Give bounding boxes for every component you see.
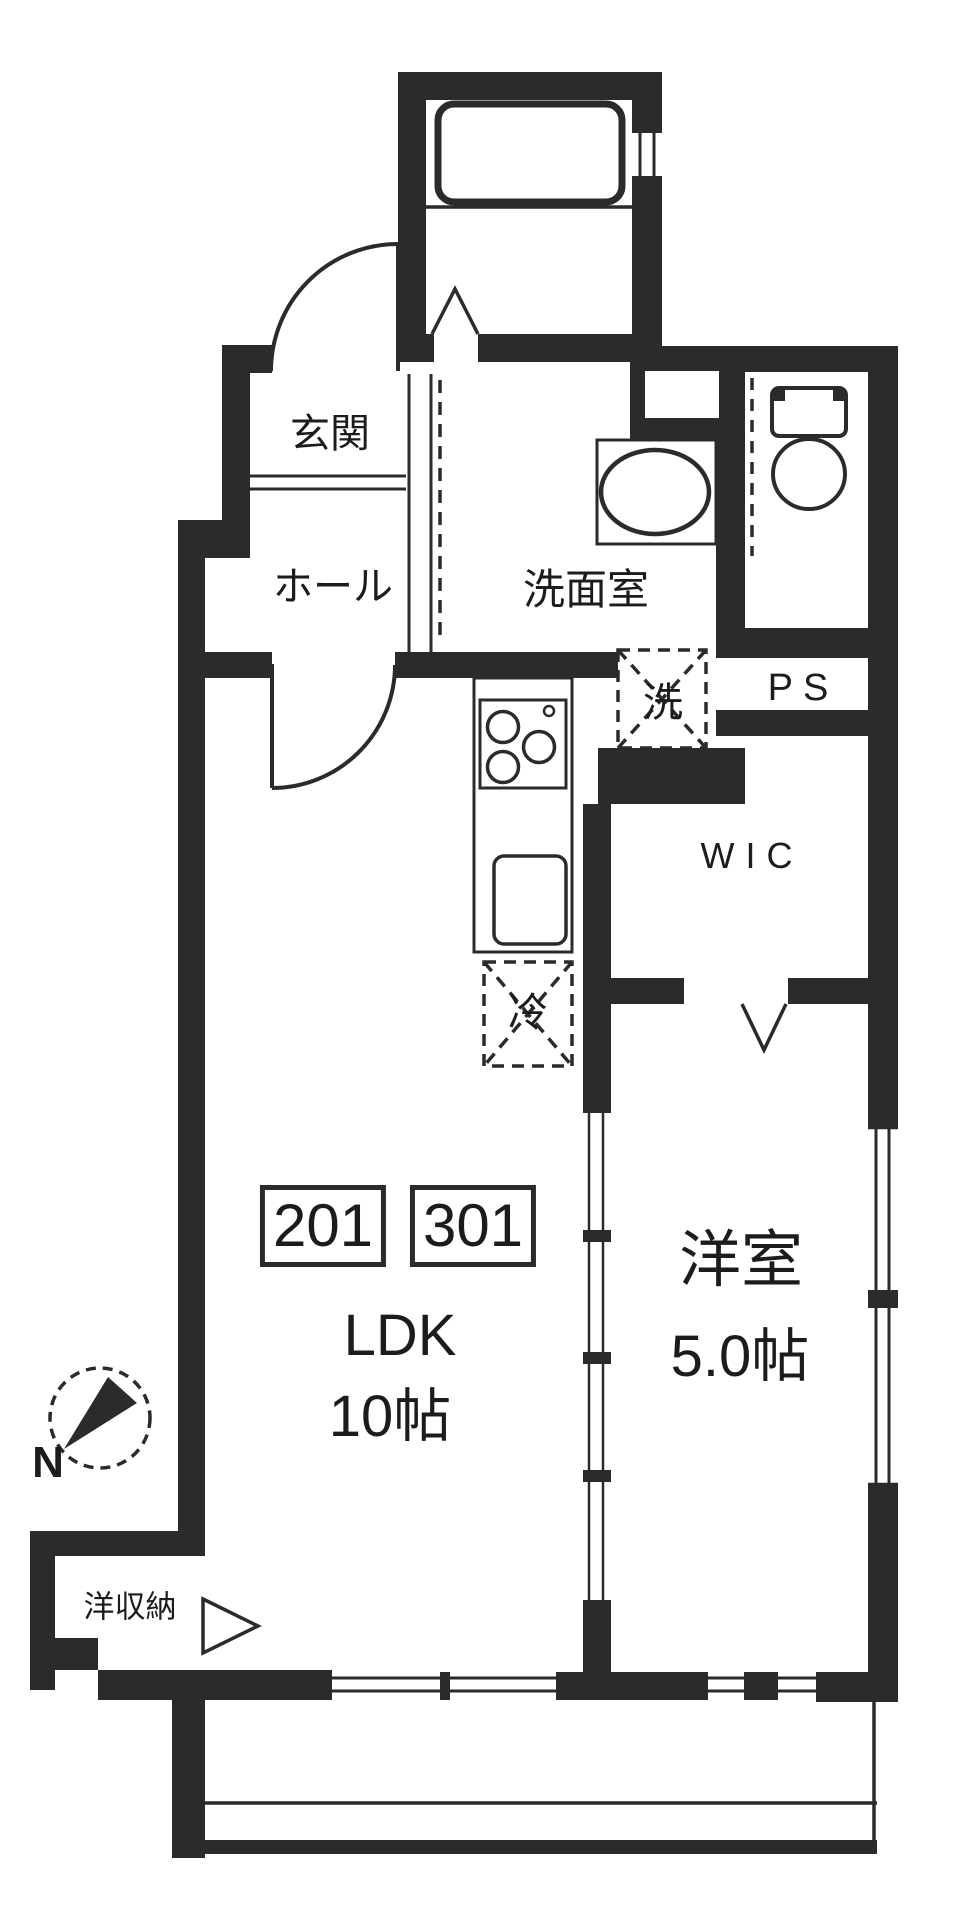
label-wic: WIC [701,838,804,874]
bathtub-icon [426,104,632,207]
sliding-partition-icon [583,1113,611,1600]
label-ldk-size: 10帖 [329,1388,452,1446]
label-storage: 洋収納 [84,1592,177,1623]
entrance-step-line [250,476,406,489]
kitchen-stove-icon [480,700,566,788]
washbasin-icon [597,440,716,544]
washroom-counter-niche [645,371,719,418]
balcony-outline [205,1702,877,1854]
label-entrance: 玄関 [290,414,370,454]
ldk-door-icon [272,664,395,788]
kitchen-sink-icon [494,856,566,944]
bath-window-icon [640,133,654,176]
label-bedroom: 洋室 [679,1230,803,1292]
label-north: N [32,1441,64,1485]
hall-washroom-door-icon [409,374,440,652]
wic-door-icon [742,1004,786,1050]
unit-badge-201: 201 [260,1185,386,1267]
entrance-door-icon [271,244,398,371]
bath-folding-door-icon [432,289,478,334]
label-ldk: LDK [344,1307,457,1365]
storage-door-arrow-icon [203,1599,258,1653]
floorplan-svg [0,0,960,1920]
unit-badge-301: 301 [410,1185,536,1267]
label-hall: ホール [273,567,393,607]
label-pipe-space: PS [768,669,839,707]
label-washroom: 洗面室 [523,569,649,611]
label-bedroom-size: 5.0帖 [671,1328,810,1386]
label-washing-machine: 洗 [643,683,683,723]
toilet-icon [772,388,846,509]
compass-icon [50,1368,150,1468]
label-refrigerator: 冷 [508,993,548,1033]
floorplan: 玄関 ホール 洗面室 洗 PS WIC 冷 201 301 LDK 10帖 洋室… [0,0,960,1920]
